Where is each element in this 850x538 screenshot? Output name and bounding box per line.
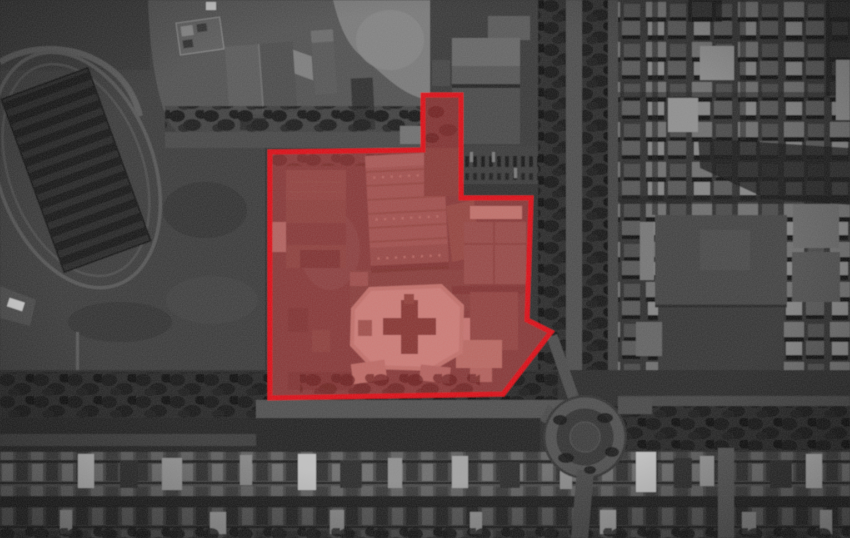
satellite-image-frame (0, 0, 850, 538)
annotated-satellite-image (0, 0, 850, 538)
film-grain (0, 0, 850, 538)
